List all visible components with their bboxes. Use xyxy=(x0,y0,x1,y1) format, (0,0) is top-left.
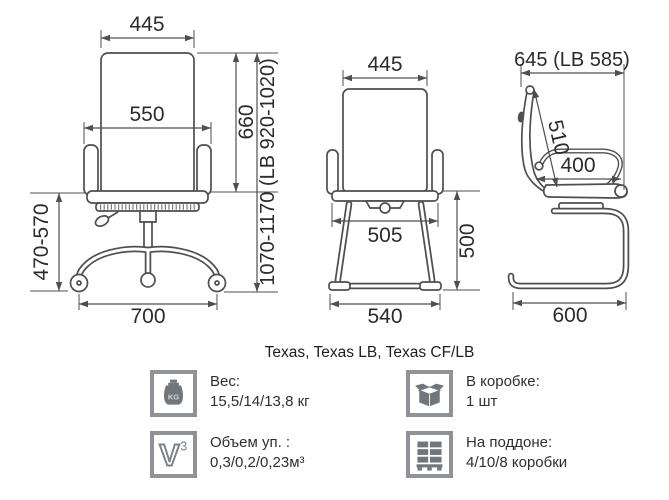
chair-side-view xyxy=(511,86,627,286)
spec-volume-label: Объем уп. : xyxy=(210,433,305,453)
five-star-base xyxy=(79,249,217,276)
pallet-icon xyxy=(406,431,453,478)
dim-cf-seat-width: 505 xyxy=(367,224,402,247)
dim-front-overall-height: 1070-1170 (LB 920-1020) xyxy=(257,58,279,286)
seat-roll-edge xyxy=(615,185,627,197)
chair-front-view xyxy=(71,53,226,292)
dim-front-base-width: 700 xyxy=(130,305,165,328)
dim-cf-back-width: 445 xyxy=(367,53,402,76)
gas-lift xyxy=(144,222,152,248)
model-title: Texas, Texas LB, Texas CF/LB xyxy=(70,344,669,362)
weight-kg-icon: KG xyxy=(150,370,197,417)
dim-side-depth: 645 (LB 585) xyxy=(514,49,630,71)
volume-v3-icon: V 3 xyxy=(150,431,197,478)
spec-volume: V 3 Объем уп. : 0,3/0,2/0,23м³ xyxy=(150,431,305,478)
spec-pallet-label: На поддоне: xyxy=(466,433,567,453)
armrest-pivot xyxy=(535,162,543,170)
backrest xyxy=(343,89,427,193)
spec-weight-value: 15,5/14/13,8 кг xyxy=(210,392,310,412)
gas-lift-top xyxy=(140,211,156,222)
caster-center xyxy=(141,273,155,287)
tilt-lever xyxy=(94,214,111,229)
dim-cf-seat-height: 500 xyxy=(456,223,479,258)
box-icon xyxy=(406,370,453,417)
spec-per-box-value: 1 шт xyxy=(466,392,540,412)
chair-front-view-cf xyxy=(327,89,443,290)
foot-right xyxy=(420,282,441,290)
svg-text:3: 3 xyxy=(180,439,187,453)
armrest-left xyxy=(327,150,338,194)
spec-per-box: В коробке: 1 шт xyxy=(406,370,540,417)
armrest-left xyxy=(84,145,98,195)
svg-text:KG: KG xyxy=(168,392,179,401)
dim-side-back-length: 510 xyxy=(543,118,573,157)
seat xyxy=(87,191,208,203)
spec-volume-value: 0,3/0,2/0,23м³ xyxy=(210,453,305,473)
spec-weight: KG Вес: 15,5/14/13,8 кг xyxy=(150,370,310,417)
dim-front-shoulder-width: 550 xyxy=(129,103,164,126)
backrest-pivot xyxy=(526,86,534,94)
dim-side-base-depth: 600 xyxy=(552,304,587,327)
backrest-rear-edge xyxy=(522,92,545,192)
spec-pallet-value: 4/10/8 коробки xyxy=(466,453,567,473)
spec-weight-label: Вес: xyxy=(210,372,310,392)
dim-front-back-width: 445 xyxy=(129,13,164,36)
dim-front-back-height: 660 xyxy=(235,104,258,139)
chair-spec-sheet: 445 550 660 1070-1170 (LB 920-1020) 470-… xyxy=(0,0,669,500)
seat xyxy=(332,191,438,201)
spec-per-box-label: В коробке: xyxy=(466,372,540,392)
foot-left xyxy=(329,282,350,290)
dim-cf-base-width: 540 xyxy=(367,305,402,328)
dimension-drawing: 445 550 660 1070-1170 (LB 920-1020) 470-… xyxy=(0,0,669,338)
dim-front-seat-height: 470-570 xyxy=(30,203,53,280)
cantilever-base xyxy=(511,211,626,286)
armrest-right xyxy=(432,150,443,194)
svg-text:V: V xyxy=(159,440,180,471)
spec-pallet: На поддоне: 4/10/8 коробки xyxy=(406,431,567,478)
dim-side-arm-depth: 400 xyxy=(560,154,595,177)
armrest-right xyxy=(197,145,211,195)
